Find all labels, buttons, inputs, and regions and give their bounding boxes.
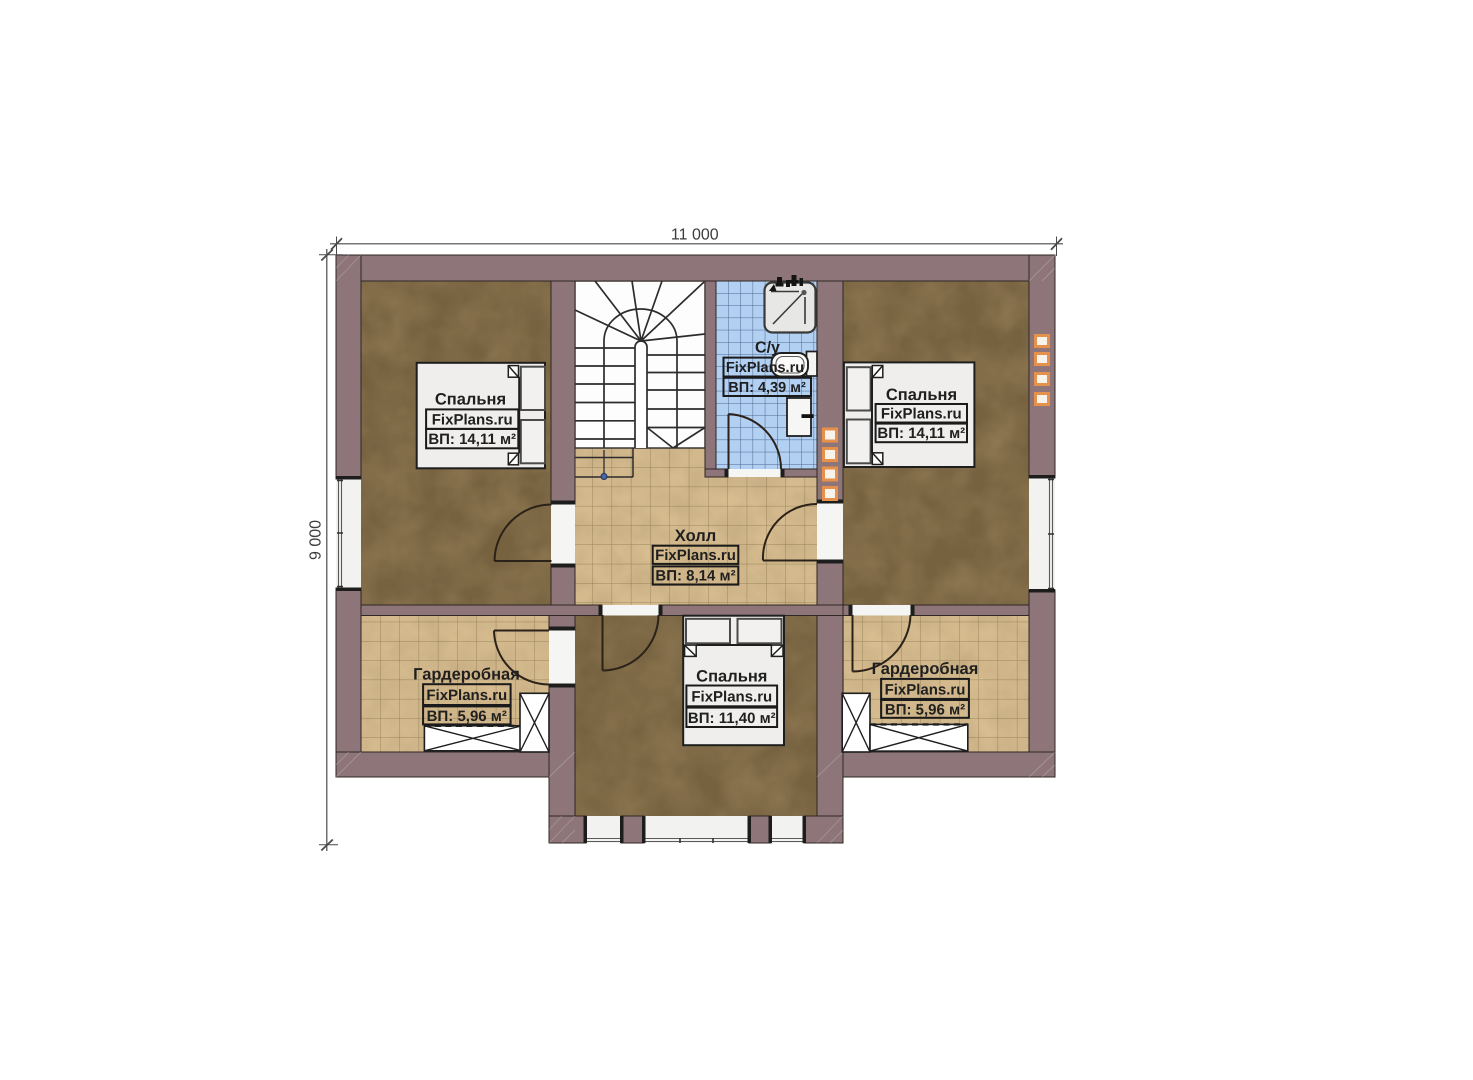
svg-text:Спальня: Спальня xyxy=(696,668,767,686)
svg-text:Спальня: Спальня xyxy=(886,386,957,404)
svg-text:ВП: 8,14 м²: ВП: 8,14 м² xyxy=(655,568,735,585)
svg-text:ВП: 14,11 м²: ВП: 14,11 м² xyxy=(428,431,516,448)
svg-text:ВП: 11,40 м²: ВП: 11,40 м² xyxy=(688,710,776,727)
svg-text:FixPlans.ru: FixPlans.ru xyxy=(881,406,962,423)
svg-text:ВП: 14,11 м²: ВП: 14,11 м² xyxy=(877,425,965,442)
svg-text:ВП: 5,96 м²: ВП: 5,96 м² xyxy=(885,701,965,718)
svg-text:FixPlans.ru: FixPlans.ru xyxy=(885,681,966,698)
svg-text:ВП: 5,96 м²: ВП: 5,96 м² xyxy=(427,708,507,725)
svg-text:ВП: 4,39 м²: ВП: 4,39 м² xyxy=(728,380,806,396)
svg-text:11 000: 11 000 xyxy=(671,227,719,244)
svg-text:Гардеробная: Гардеробная xyxy=(872,660,979,678)
svg-text:FixPlans.ru: FixPlans.ru xyxy=(726,360,804,376)
svg-text:Гардеробная: Гардеробная xyxy=(413,666,520,684)
svg-text:FixPlans.ru: FixPlans.ru xyxy=(655,547,736,564)
svg-text:FixPlans.ru: FixPlans.ru xyxy=(426,687,507,704)
svg-text:Спальня: Спальня xyxy=(435,391,506,409)
svg-text:FixPlans.ru: FixPlans.ru xyxy=(691,689,772,706)
svg-text:Холл: Холл xyxy=(675,527,716,545)
svg-text:9 000: 9 000 xyxy=(308,520,325,560)
svg-text:FixPlans.ru: FixPlans.ru xyxy=(432,412,513,429)
